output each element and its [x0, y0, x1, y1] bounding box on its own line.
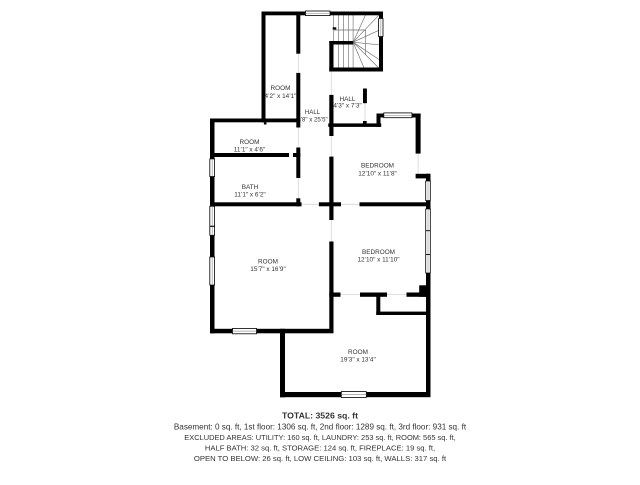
- svg-text:BATH: BATH: [242, 184, 259, 191]
- svg-text:4’2" x 14’1": 4’2" x 14’1": [265, 93, 297, 100]
- svg-text:EXCLUDED AREAS: UTILITY: 160 s: EXCLUDED AREAS: UTILITY: 160 sq. ft, LAU…: [184, 433, 455, 442]
- svg-text:15’7" x 16’9": 15’7" x 16’9": [250, 266, 285, 273]
- svg-text:ROOM: ROOM: [348, 349, 368, 356]
- svg-text:HALL: HALL: [305, 109, 321, 116]
- svg-text:TOTAL: 3526 sq. ft: TOTAL: 3526 sq. ft: [282, 411, 358, 421]
- svg-text:11’1" x 6’2": 11’1" x 6’2": [234, 192, 265, 199]
- svg-text:HALF BATH: 32 sq. ft, STORAGE:: HALF BATH: 32 sq. ft, STORAGE: 124 sq. f…: [205, 443, 435, 452]
- svg-text:ROOM: ROOM: [271, 85, 291, 92]
- svg-text:19’3" x 13’4": 19’3" x 13’4": [340, 357, 375, 364]
- svg-text:4’8" x 25’5": 4’8" x 25’5": [297, 117, 327, 124]
- svg-text:ROOM: ROOM: [240, 139, 260, 146]
- svg-text:OPEN TO BELOW: 26 sq. ft, LOW: OPEN TO BELOW: 26 sq. ft, LOW CEILING: 1…: [194, 454, 447, 463]
- svg-text:BEDROOM: BEDROOM: [361, 163, 394, 170]
- svg-text:12’10" x 11’10": 12’10" x 11’10": [357, 257, 399, 264]
- svg-text:BEDROOM: BEDROOM: [362, 249, 395, 256]
- svg-text:Basement: 0 sq. ft, 1st floor:: Basement: 0 sq. ft, 1st floor: 1306 sq. …: [174, 422, 467, 431]
- svg-text:12’10" x 11’8": 12’10" x 11’8": [358, 171, 397, 178]
- svg-text:4’3" x 7’3": 4’3" x 7’3": [333, 103, 361, 110]
- svg-text:ROOM: ROOM: [258, 258, 278, 265]
- svg-text:11’1" x 4’6": 11’1" x 4’6": [234, 147, 265, 154]
